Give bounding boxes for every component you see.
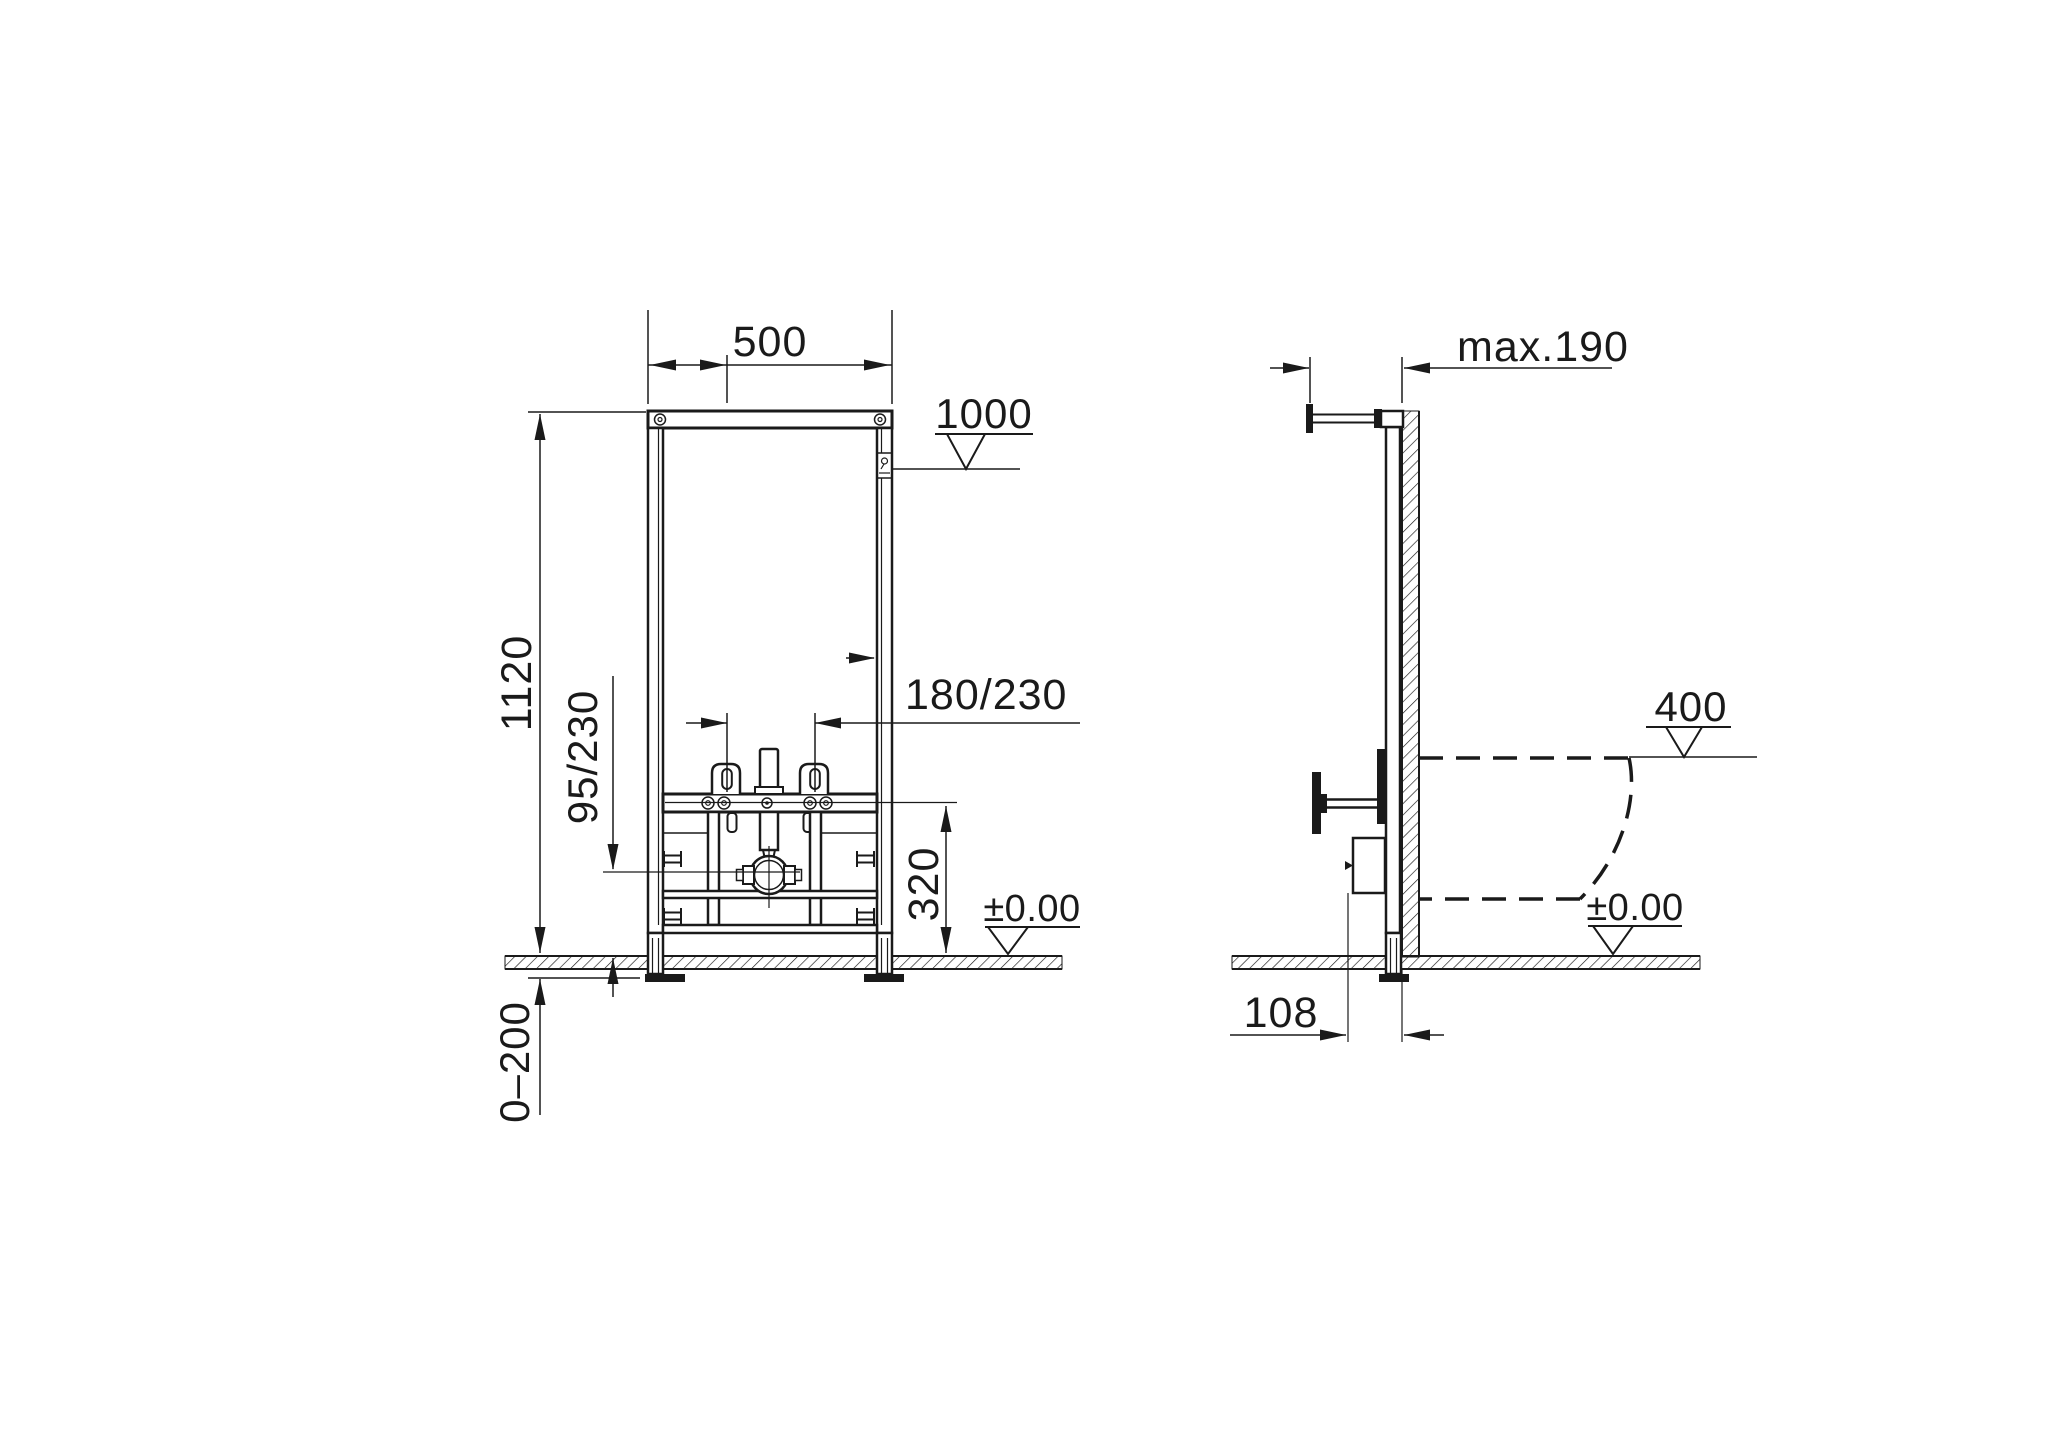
frame-left-column [648,428,663,933]
dim-inlet-height-label: 95/230 [559,690,606,824]
top-fixing-clip [878,453,892,478]
frame-right-column [877,428,892,933]
dim-width-500: 500 [648,310,892,404]
dim-height-label: 1120 [493,635,541,731]
side-view: max.190 400 ±0.00 108 [1230,323,1757,1042]
fixing-stud-left [712,764,740,794]
floor-section-front [505,956,1062,969]
frame-side-profile [1306,404,1409,982]
level-marker-400: 400 [1629,683,1757,757]
fixing-stud-right [800,764,828,794]
floor-level-label-side: ±0.00 [1586,887,1683,929]
technical-drawing-page: 500 1120 1000 180/230 [0,0,2048,1446]
front-view: 500 1120 1000 180/230 [491,310,1081,1123]
frame-front [645,411,904,982]
dim-drain-height-label: 320 [900,847,948,922]
bottom-rail [663,925,877,933]
dim-foot-adjustment-label: 0–200 [491,1001,538,1123]
frame-top-bar [648,411,892,428]
dim-foot-adjustment: 0–200 [491,958,640,1123]
side-wall-bracket [1312,749,1386,834]
floor-section-side [1232,956,1700,969]
level-marker-floor-front: ±0.00 [983,888,1080,954]
bidet-outline-dashed [1419,758,1632,899]
dim-width-label: 500 [733,318,808,366]
wall-section [1402,411,1419,957]
inner-post-left [708,812,719,925]
dim-depth-label: max.190 [1457,323,1629,371]
drain-connection-box [1345,838,1385,893]
installation-drawing: 500 1120 1000 180/230 [0,0,2048,1446]
dim-drain-offset-label: 108 [1244,989,1319,1037]
inner-post-right [810,812,821,925]
level-marker-floor-side: ±0.00 [1586,887,1683,954]
top-wall-bracket [1306,404,1313,433]
floor-level-label-front: ±0.00 [983,888,1080,930]
level-marker-1000: 1000 [893,390,1033,469]
level-400-label: 400 [1654,683,1727,730]
level-1000-label: 1000 [935,390,1032,437]
dim-stud-spacing-label: 180/230 [905,671,1067,719]
dim-depth-max190: max.190 [1270,323,1629,403]
